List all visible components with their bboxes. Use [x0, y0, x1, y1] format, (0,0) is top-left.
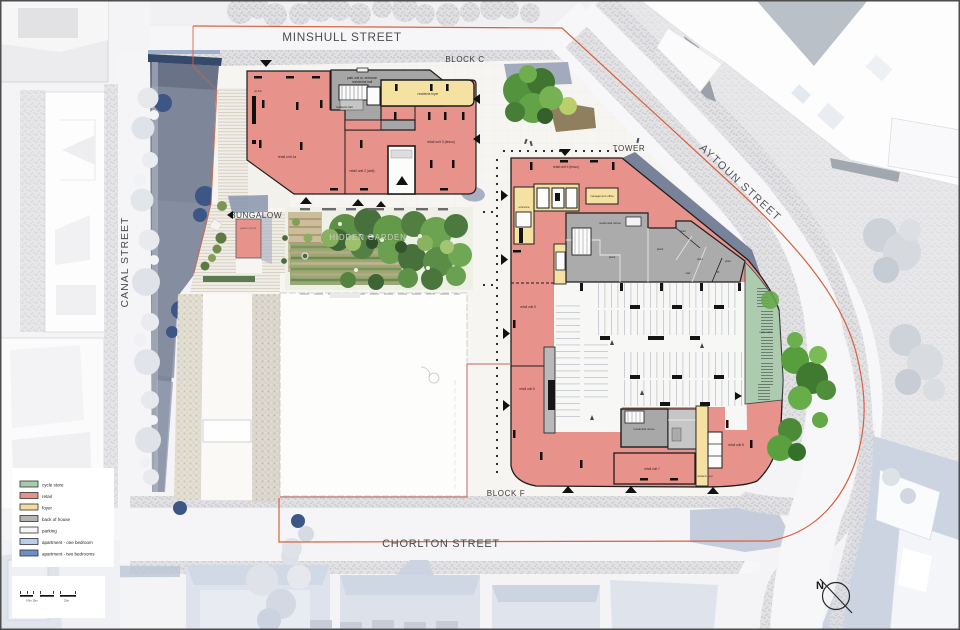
svg-text:CANAL STREET: CANAL STREET: [119, 217, 131, 308]
svg-text:parking: parking: [42, 529, 57, 534]
svg-text:BUNGALOW: BUNGALOW: [230, 210, 282, 220]
svg-text:entrance: entrance: [519, 205, 530, 209]
svg-text:foyer: foyer: [42, 506, 53, 511]
svg-text:cycle store: cycle store: [42, 483, 64, 488]
svg-text:CHORLTON STREET: CHORLTON STREET: [382, 538, 500, 550]
svg-text:N: N: [816, 580, 824, 592]
svg-text:retail unit 5: retail unit 5: [520, 305, 536, 309]
svg-text:0 5m 10m: 0 5m 10m: [26, 599, 38, 603]
svg-text:apartment - one bedroom: apartment - one bedroom: [42, 540, 93, 545]
svg-text:lift: lift: [717, 270, 720, 274]
svg-text:TOWER: TOWER: [613, 144, 646, 153]
svg-text:residents hall: residents hall: [336, 105, 353, 109]
svg-text:residential refuse: residential refuse: [633, 427, 655, 431]
svg-text:residents foyer: residents foyer: [697, 475, 713, 478]
svg-text:MINSHULL STREET: MINSHULL STREET: [282, 30, 402, 44]
svg-text:residential hall: residential hall: [352, 80, 373, 84]
svg-text:back of house: back of house: [42, 517, 71, 522]
svg-text:25m: 25m: [64, 599, 69, 603]
svg-text:retail unit 4 (tesco): retail unit 4 (tesco): [553, 165, 579, 169]
svg-text:retail unit 6: retail unit 6: [519, 387, 535, 391]
svg-text:retail unit 2 (aldi): retail unit 2 (aldi): [349, 169, 374, 173]
svg-text:cycle store: cycle store: [759, 330, 773, 334]
svg-text:retail unit 3 (tesco): retail unit 3 (tesco): [427, 140, 455, 144]
svg-text:green (roof): green (roof): [240, 226, 256, 230]
svg-text:residential refuse: residential refuse: [599, 221, 621, 225]
svg-text:retail unit 7: retail unit 7: [644, 467, 660, 471]
svg-text:plant: plant: [609, 255, 616, 259]
svg-text:management office: management office: [590, 194, 614, 198]
svg-text:plant: plant: [697, 257, 703, 261]
svg-text:plant: plant: [725, 259, 731, 263]
svg-text:plant: plant: [657, 247, 664, 251]
svg-text:apartment - two bedrooms: apartment - two bedrooms: [42, 552, 95, 557]
svg-text:ret./bin: ret./bin: [254, 89, 262, 93]
svg-text:BLOCK F: BLOCK F: [487, 489, 525, 498]
svg-text:HIDDEN GARDEN: HIDDEN GARDEN: [329, 233, 407, 242]
svg-text:residents foyer: residents foyer: [418, 92, 440, 96]
svg-text:stair: stair: [686, 271, 691, 275]
svg-text:retail unit 1a: retail unit 1a: [278, 155, 297, 159]
svg-text:retail: retail: [42, 494, 52, 499]
svg-text:plant: plant: [680, 229, 686, 233]
svg-text:BLOCK C: BLOCK C: [445, 55, 484, 64]
svg-text:retail unit 8: retail unit 8: [728, 443, 744, 447]
